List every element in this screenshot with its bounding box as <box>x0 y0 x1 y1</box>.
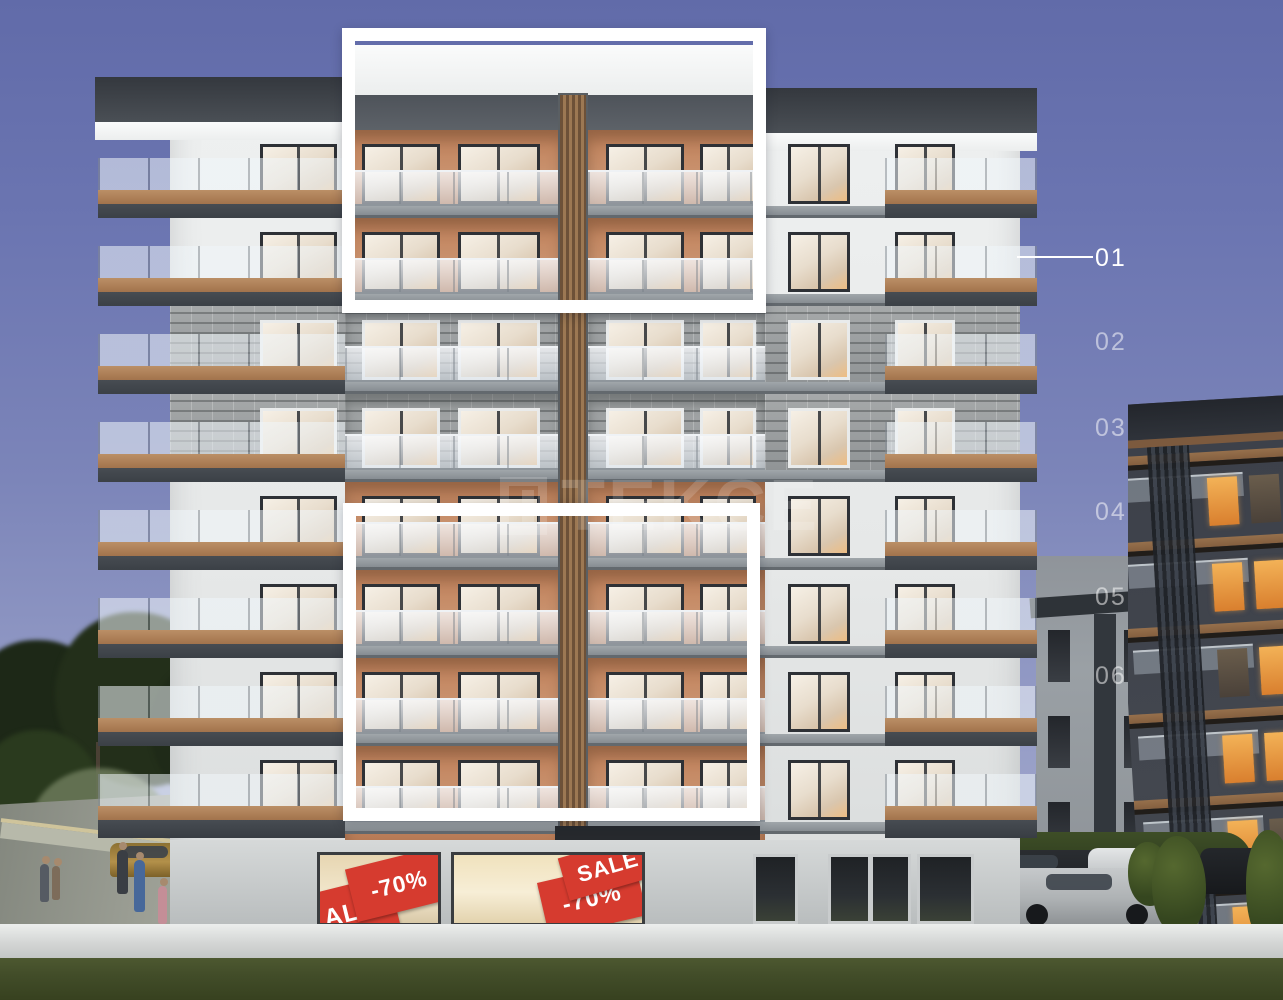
person-figure <box>40 864 49 902</box>
neighbor-floor <box>1128 532 1283 629</box>
grass-strip <box>0 958 1283 1000</box>
window <box>788 760 850 820</box>
floor-label-04[interactable]: 04 <box>1095 500 1127 525</box>
balcony-left <box>98 746 345 840</box>
window <box>1048 716 1070 768</box>
balcony-right <box>885 394 1037 482</box>
balcony-right <box>885 570 1037 658</box>
window <box>1249 474 1282 524</box>
balcony-left <box>98 218 345 306</box>
floor-01-connector-line <box>1017 256 1093 258</box>
discount-sign: -70% <box>345 852 441 922</box>
balcony-left <box>98 306 345 394</box>
balcony-left <box>98 658 345 746</box>
architectural-render: ALE -70% -70% SALE TEKCE 01 02 03 04 05 … <box>0 0 1283 1000</box>
window <box>1207 476 1240 526</box>
facade-center-left <box>345 306 562 394</box>
floor-label-01[interactable]: 01 <box>1095 246 1127 271</box>
floor-label-02[interactable]: 02 <box>1095 330 1127 355</box>
ground-glass-door <box>917 854 974 924</box>
window <box>1259 645 1283 695</box>
window <box>788 320 850 380</box>
floor-slab <box>345 382 885 394</box>
facade-center-right <box>588 306 765 394</box>
roof-overhang-left <box>95 77 353 122</box>
balcony-right <box>885 746 1037 840</box>
window <box>1254 560 1283 610</box>
balcony-right <box>885 306 1037 394</box>
glass-balustrade <box>588 346 765 382</box>
balcony-right <box>885 658 1037 746</box>
balcony-left <box>98 394 345 482</box>
person-figure <box>52 866 60 900</box>
neighbor-building-roof <box>1128 394 1283 450</box>
window <box>1222 734 1255 784</box>
window <box>1264 731 1283 781</box>
shop-window-left: ALE -70% <box>317 852 441 926</box>
ground-glass-door <box>753 854 798 924</box>
window <box>788 232 850 292</box>
ground-glass-door <box>828 854 911 924</box>
glass-balustrade <box>345 346 562 382</box>
balcony-left <box>98 570 345 658</box>
window <box>1212 562 1245 612</box>
boundary-wall <box>0 924 1283 962</box>
window <box>1217 648 1250 698</box>
floor-label-03[interactable]: 03 <box>1095 416 1127 441</box>
car-wheel <box>1126 904 1148 926</box>
window <box>1048 630 1070 682</box>
roof-overhang-right <box>758 88 1037 133</box>
balcony-right <box>885 130 1037 218</box>
shop-window-right: -70% SALE <box>451 852 645 926</box>
car-window <box>1046 874 1112 890</box>
balcony-right <box>885 218 1037 306</box>
floor-label-06[interactable]: 06 <box>1095 664 1127 689</box>
balcony-right <box>885 482 1037 570</box>
window <box>788 584 850 644</box>
neighbor-floor <box>1128 618 1283 715</box>
window <box>788 672 850 732</box>
balcony-left <box>98 130 345 218</box>
ground-floor: ALE -70% -70% SALE <box>170 840 1020 930</box>
floor-label-05[interactable]: 05 <box>1095 585 1127 610</box>
window <box>788 144 850 204</box>
highlight-frame-top <box>342 28 766 313</box>
highlight-frame-bottom <box>343 503 760 821</box>
balcony-left <box>98 482 345 570</box>
